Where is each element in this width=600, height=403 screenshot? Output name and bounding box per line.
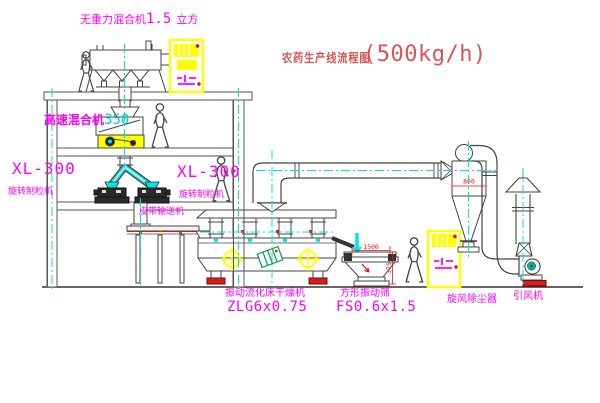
sieve-model-label: FS0.6x1.5 (336, 300, 416, 314)
process-flow-drawing: 1500 375 800 (0, 0, 600, 403)
gravity-mixer-unit: 立方 (176, 13, 198, 26)
fluid-bed-dryer (197, 210, 336, 284)
cyclone-diameter-dimension: 800 (463, 178, 475, 186)
vibrating-sieve (332, 233, 398, 286)
granulator-left-model: XL-300 (12, 161, 76, 177)
drawing-title: 农药生产线流程图 (282, 52, 370, 64)
high-speed-mixer-label: 高速混合机350 (44, 111, 129, 127)
granulator-mid-model: XL-300 (177, 164, 241, 180)
cyclone-label: 旋风除尘器 (447, 295, 497, 305)
dryer-model-label: ZLG6x0.75 (227, 300, 307, 314)
person-figure (406, 238, 422, 282)
belt-conveyor (127, 226, 199, 283)
dryer-name-label: 振动流化床干燥机 (225, 289, 305, 299)
gravity-mixer-value: 1.5 (146, 11, 171, 27)
high-speed-mixer-value: 350 (104, 112, 129, 128)
control-cabinet-1 (170, 40, 203, 92)
gravity-mixer-label: 无重力混合机1.5 立方 (80, 10, 198, 26)
granulator-left-unit (94, 182, 129, 203)
person-figure (152, 104, 168, 147)
sieve-height-dimension: 375 (385, 262, 393, 274)
gravity-mixer-name: 无重力混合机 (80, 13, 146, 26)
control-cabinet-2 (428, 231, 460, 287)
sieve-length-dimension: 1500 (363, 243, 379, 251)
granulator-left-name: 旋转制粒机 (8, 188, 53, 197)
fan-label: 引风机 (513, 292, 543, 302)
granulator-mid-name: 旋转制粒机 (179, 191, 224, 200)
drawing-title-capacity: (500kg/h) (363, 44, 487, 66)
sieve-name-label: 方形振动筛 (340, 289, 390, 299)
high-speed-mixer-name: 高速混合机 (44, 113, 104, 127)
belt-conveyor-label: 皮带输送机 (139, 208, 184, 217)
y-split-chute (110, 156, 151, 186)
